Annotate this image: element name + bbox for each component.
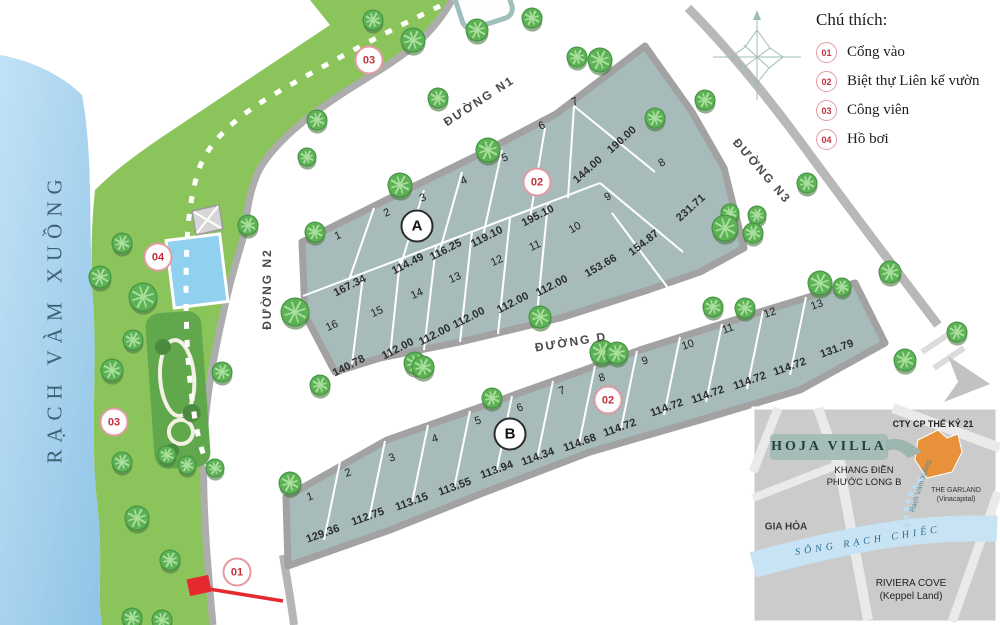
tree-icon <box>698 293 728 324</box>
tree-icon <box>305 371 335 402</box>
pool <box>166 234 228 308</box>
tree-icon <box>792 169 822 200</box>
tree-icon <box>889 345 922 378</box>
river <box>0 55 102 625</box>
playground <box>145 310 212 470</box>
structure-hatched <box>192 205 223 235</box>
site-plan-map: RẠCH VÀM XUỒNG Chú thích: 01 Cổng vào 02… <box>0 0 1000 625</box>
tree-icon <box>423 84 453 115</box>
block-a <box>302 46 744 372</box>
tree-icon <box>517 4 547 35</box>
inset-map <box>753 408 1000 622</box>
map-canvas <box>0 0 1000 625</box>
tree-icon <box>293 145 321 173</box>
